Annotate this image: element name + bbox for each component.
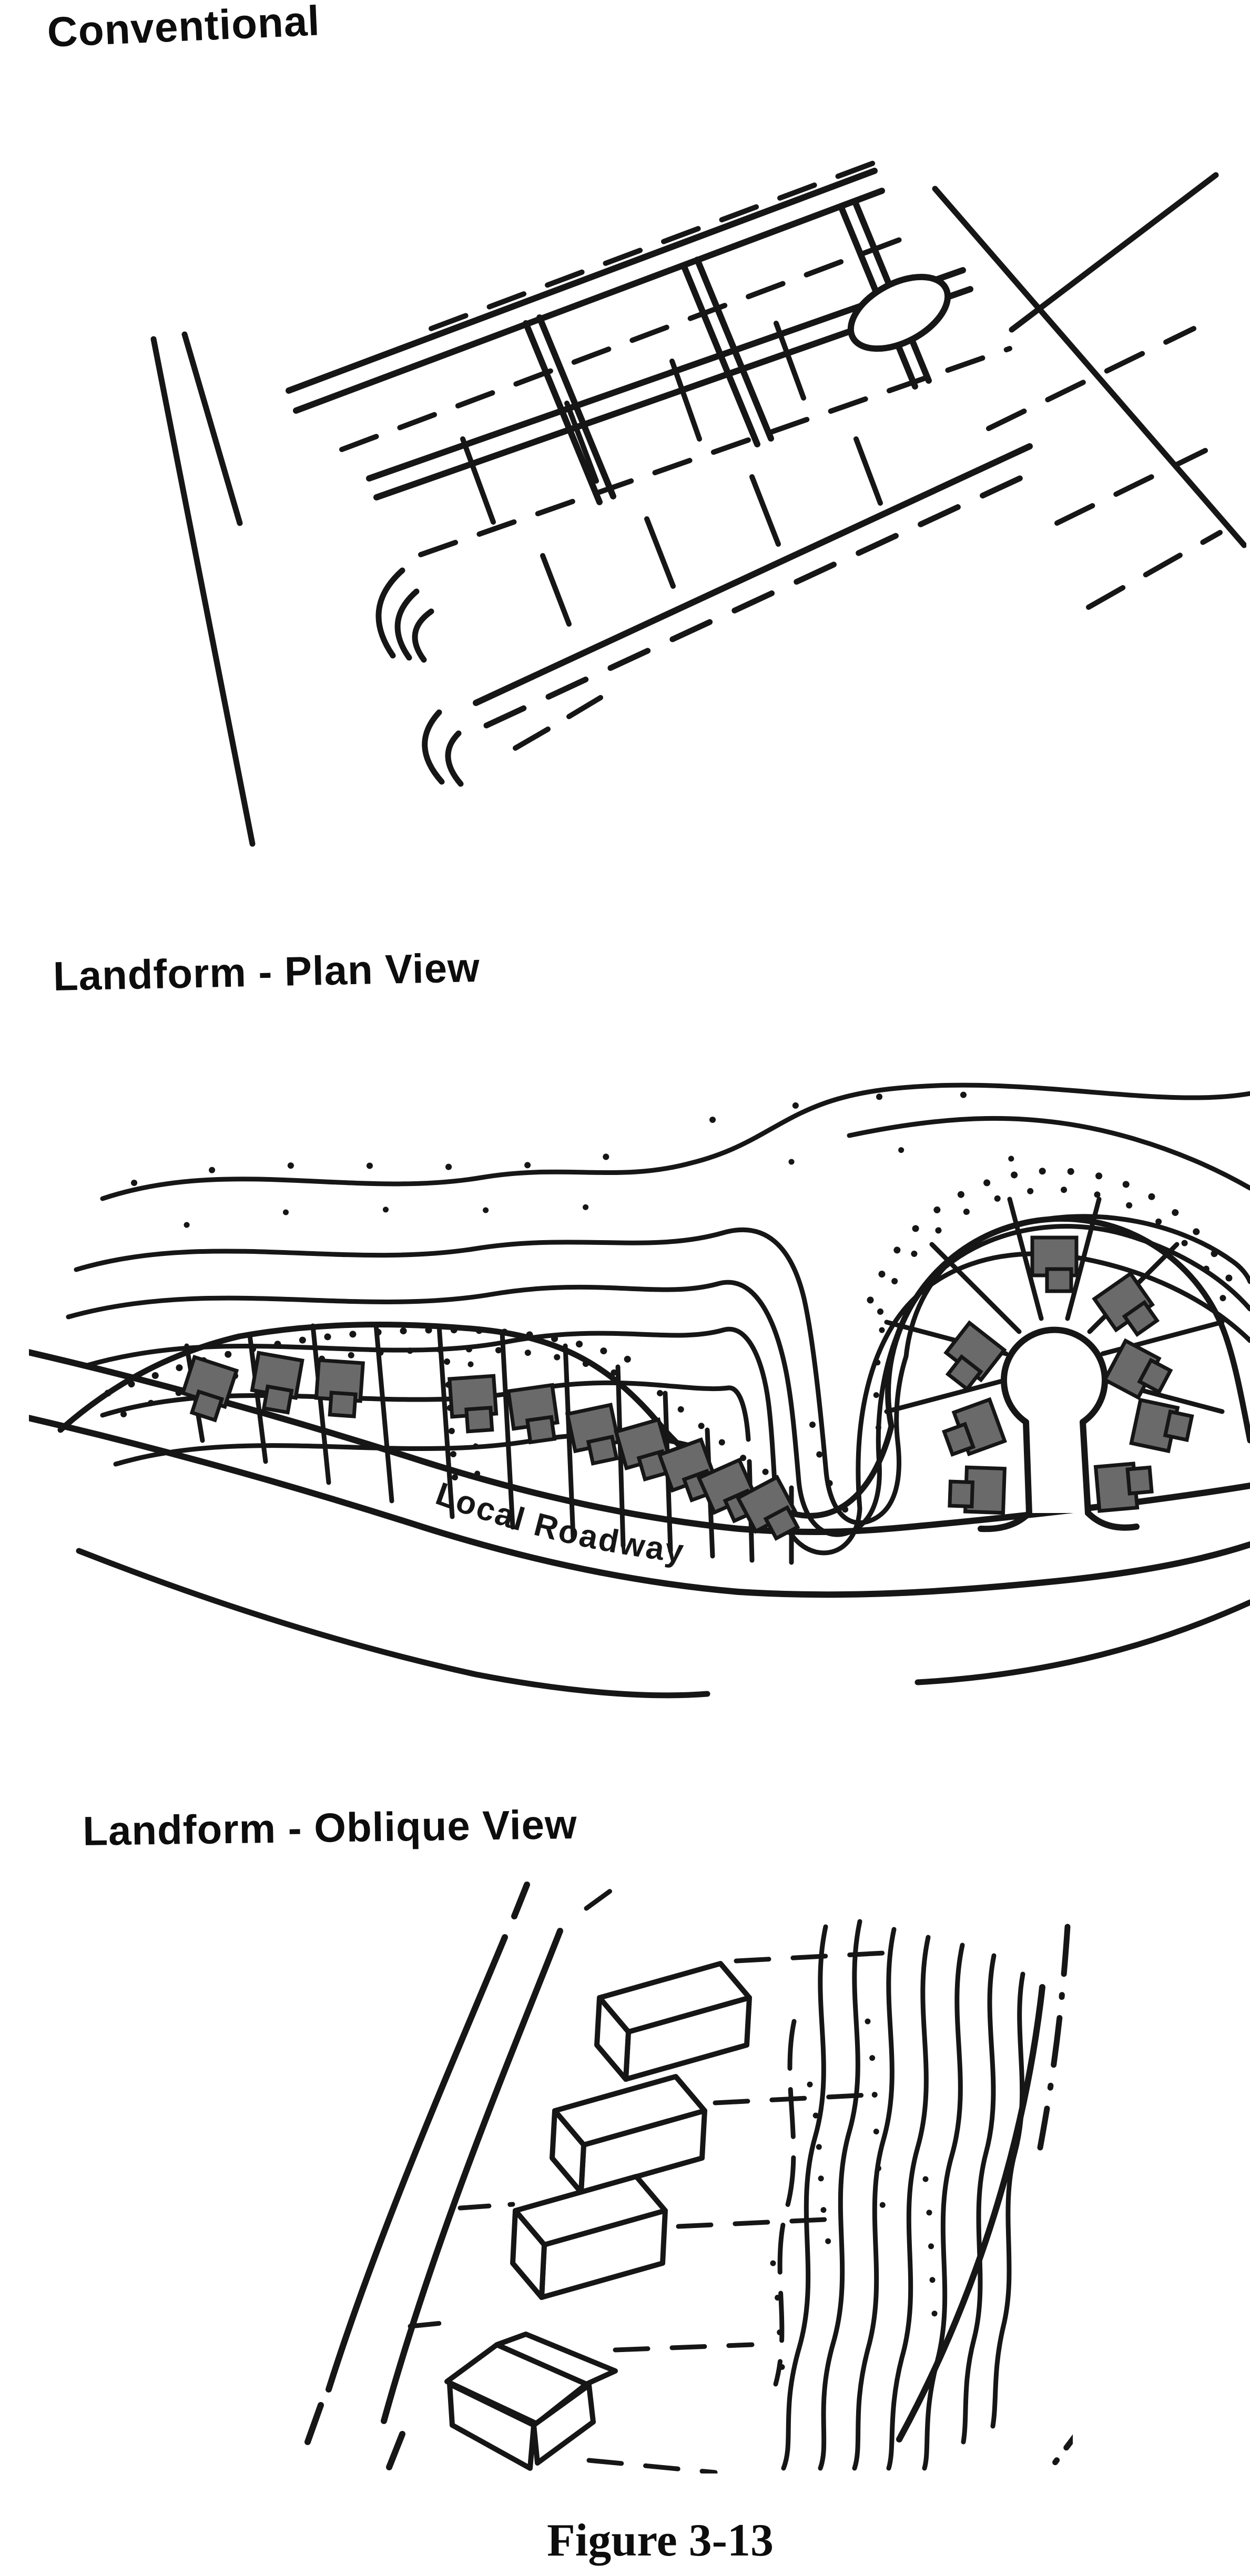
figure-caption: Figure 3-13 [547, 2514, 774, 2567]
conventional-corner-hooks [379, 570, 461, 784]
conventional-drawing [95, 155, 1246, 862]
conventional-lot-dashes [342, 159, 1220, 748]
oblique-contour-lines [776, 1921, 1023, 2468]
road-label: Local Roadway [431, 1476, 687, 1570]
oblique-houses-group [447, 1964, 749, 2468]
section-title-conventional: Conventional [46, 0, 321, 57]
conventional-roads [154, 171, 1244, 844]
section-title-plan-view: Landform - Plan View [53, 944, 480, 1000]
oblique-view-drawing [279, 1864, 1073, 2473]
plan-view-drawing: Local Roadway [29, 1025, 1250, 1703]
section-title-oblique-view: Landform - Oblique View [83, 1801, 577, 1855]
oblique-stipple-dots [773, 2021, 937, 2389]
